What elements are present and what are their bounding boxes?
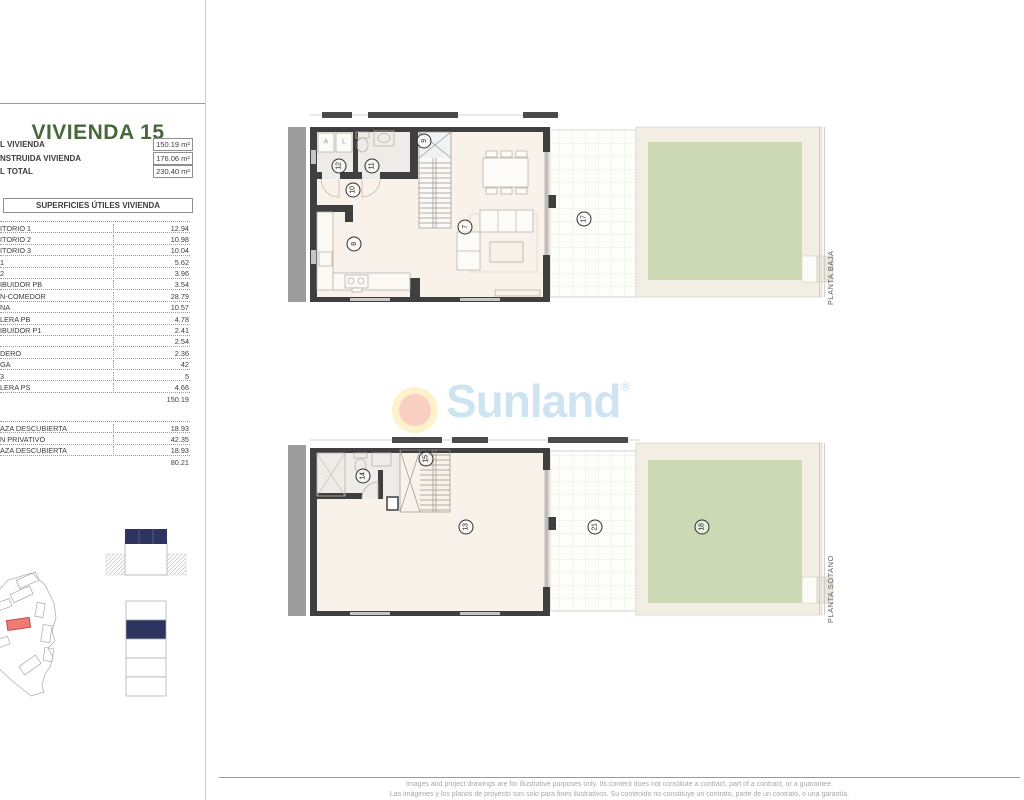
room-number-marker: 15 (419, 452, 434, 467)
disclaimer-es: Las imágenes y los planos de proyecto so… (215, 790, 1024, 800)
brand-name: Sunland® (446, 374, 630, 428)
area-total: 80.21 (0, 456, 190, 466)
area-value: 4.78 (175, 315, 189, 324)
area-value: 42 (181, 360, 189, 369)
area-label: ITORIO 2 (0, 235, 114, 243)
room-number-marker: 7 (458, 220, 473, 235)
area-label: IBUIDOR PB (0, 280, 114, 288)
area-total: 150.19 (0, 393, 190, 403)
summary-value: 176.06 m² (153, 152, 193, 165)
closet-letter: A (324, 139, 329, 146)
summary-label: L TOTAL (0, 167, 33, 176)
area-row: 15.62 (0, 256, 190, 267)
area-label: 3 (0, 372, 114, 380)
area-total-value: 150.19 (167, 395, 189, 404)
area-row: GA42 (0, 359, 190, 370)
area-value: 42.35 (171, 435, 189, 444)
footer-rule (219, 777, 1020, 778)
area-row: IBUIDOR P12.41 (0, 325, 190, 336)
area-label: ITORIO 1 (0, 224, 114, 232)
area-label: AZA DESCUBIERTA (0, 424, 114, 432)
area-label: DERO (0, 349, 114, 357)
planta-baja-drawing (280, 110, 850, 310)
area-value: 3.54 (175, 280, 189, 289)
summary-value: 230.40 m² (153, 165, 193, 178)
area-label: N-COMEDOR (0, 292, 114, 300)
room-number-marker: 21 (588, 520, 603, 535)
room-number-marker: 11 (365, 159, 380, 174)
area-label: NA (0, 303, 114, 311)
panel-divider (205, 0, 206, 800)
area-label: 2 (0, 269, 114, 277)
area-value: 12.94 (171, 224, 189, 233)
area-value: 28.79 (171, 292, 189, 301)
area-row: 23.96 (0, 268, 190, 279)
sunland-watermark: Sunland® (390, 378, 670, 448)
area-value: 18.93 (171, 446, 189, 455)
area-row: IBUIDOR PB3.54 (0, 279, 190, 290)
area-row: 2.54 (0, 336, 190, 347)
area-label: GA (0, 360, 114, 368)
area-row: DERO2.36 (0, 347, 190, 358)
area-row: ITORIO 112.94 (0, 222, 190, 233)
area-value: 10.98 (171, 235, 189, 244)
summary-row: L VIVIENDA150.19 m² (0, 138, 194, 151)
disclaimer: Images and project drawings are for illu… (215, 780, 1024, 799)
disclaimer-en: Images and project drawings are for illu… (215, 780, 1024, 790)
room-number-marker: 8 (347, 237, 362, 252)
area-row: 35 (0, 370, 190, 381)
useful-areas-table: ITORIO 112.94ITORIO 210.98ITORIO 310.041… (0, 221, 190, 403)
area-label: ITORIO 3 (0, 246, 114, 254)
brochure-page: VIVIENDA 15 L VIVIENDA150.19 m²NSTRUIDA … (0, 0, 1024, 800)
area-row: ITORIO 210.98 (0, 233, 190, 244)
area-row: N PRIVATIVO42.35 (0, 433, 190, 444)
area-label: 1 (0, 258, 114, 266)
summary-label: NSTRUIDA VIVIENDA (0, 154, 81, 163)
room-number-marker: 17 (577, 212, 592, 227)
room-number-marker: 14 (356, 469, 371, 484)
area-value: 2.54 (175, 337, 189, 346)
site-plan (0, 572, 56, 696)
panel-top-rule (0, 103, 205, 104)
area-row: N-COMEDOR28.79 (0, 290, 190, 301)
area-value: 10.57 (171, 303, 189, 312)
section-diagram (106, 529, 186, 575)
surface-summary: L VIVIENDA150.19 m²NSTRUIDA VIVIENDA176.… (0, 138, 194, 179)
area-value: 5.62 (175, 258, 189, 267)
sun-icon (392, 387, 438, 433)
area-row: ITORIO 310.04 (0, 245, 190, 256)
summary-value: 150.19 m² (153, 138, 193, 151)
area-total-value: 80.21 (171, 458, 189, 467)
area-value: 5 (185, 372, 189, 381)
area-label: IBUIDOR P1 (0, 326, 114, 334)
room-number-marker: 13 (459, 520, 474, 535)
area-label: LERA PB (0, 315, 114, 323)
planta-baja-label: PLANTA BAJA (826, 250, 835, 305)
closet-letter: L (342, 139, 346, 146)
room-number-marker: 9 (417, 134, 432, 149)
area-value: 10.04 (171, 246, 189, 255)
site-plan-and-legend (0, 510, 200, 800)
area-value: 18.93 (171, 424, 189, 433)
floor-stack-indicator (126, 601, 166, 696)
area-label: AZA DESCUBIERTA (0, 446, 114, 454)
summary-row: L TOTAL230.40 m² (0, 165, 194, 178)
area-label (0, 337, 114, 345)
room-number-marker: 10 (346, 183, 361, 198)
area-value: 2.41 (175, 326, 189, 335)
planta-sotano-label: PLANTA SÓTANO (826, 555, 835, 623)
area-value: 2.36 (175, 349, 189, 358)
summary-row: NSTRUIDA VIVIENDA176.06 m² (0, 152, 194, 165)
area-value: 4.66 (175, 383, 189, 392)
registered-mark: ® (620, 379, 630, 394)
area-row: LERA PB4.78 (0, 313, 190, 324)
area-row: NA10.57 (0, 302, 190, 313)
area-row: LERA PS4.66 (0, 381, 190, 392)
exterior-areas-table: AZA DESCUBIERTA18.93N PRIVATIVO42.35AZA … (0, 421, 190, 466)
area-value: 3.96 (175, 269, 189, 278)
planta-sotano-drawing (280, 430, 850, 630)
summary-label: L VIVIENDA (0, 140, 45, 149)
room-number-marker: 18 (695, 520, 710, 535)
area-row: AZA DESCUBIERTA18.93 (0, 422, 190, 433)
area-row: AZA DESCUBIERTA18.93 (0, 445, 190, 456)
area-label: N PRIVATIVO (0, 435, 114, 443)
room-number-marker: 12 (332, 159, 347, 174)
useful-areas-header: SUPERFICIES ÚTILES VIVIENDA (3, 198, 193, 213)
area-label: LERA PS (0, 383, 114, 391)
